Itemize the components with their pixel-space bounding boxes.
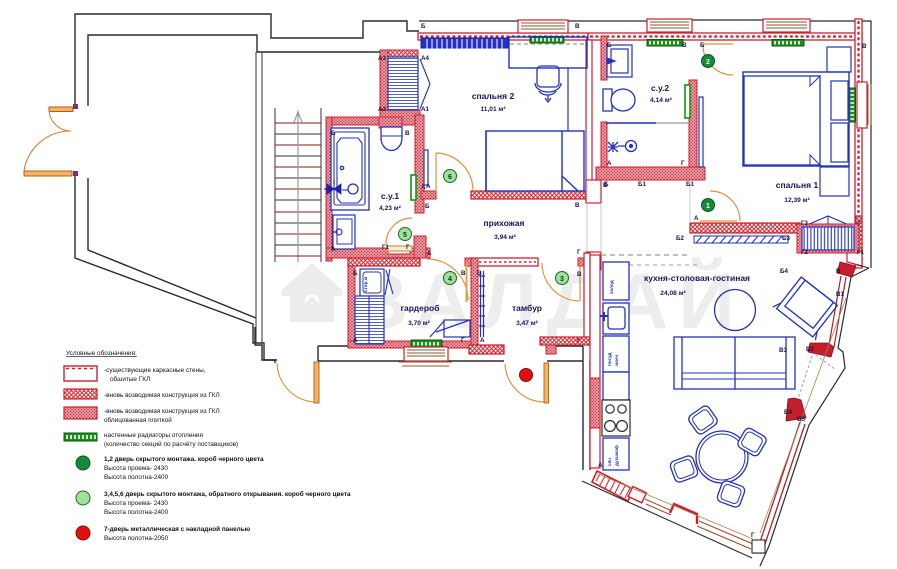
svg-text:Б: Б	[331, 130, 336, 137]
svg-text:4: 4	[448, 276, 452, 283]
svg-text:1: 1	[706, 203, 710, 210]
svg-text:Б2: Б2	[676, 235, 684, 242]
svg-text:В4: В4	[784, 409, 792, 416]
svg-text:В: В	[461, 270, 466, 277]
svg-text:В: В	[836, 268, 841, 275]
svg-text:Г: Г	[681, 160, 685, 167]
svg-text:гардероб: гардероб	[400, 303, 439, 313]
svg-text:кухня-столовая-гостиная: кухня-столовая-гостиная	[644, 273, 750, 283]
svg-text:Высота полотна-2400: Высота полотна-2400	[104, 474, 169, 481]
svg-text:В5: В5	[797, 416, 805, 423]
svg-text:А: А	[331, 246, 336, 253]
svg-text:Высота полотна-2400: Высота полотна-2400	[104, 509, 169, 516]
svg-text:В: В	[682, 42, 687, 49]
svg-text:24,08 м²: 24,08 м²	[660, 290, 686, 297]
svg-text:Б3: Б3	[782, 235, 790, 242]
svg-text:Г: Г	[858, 220, 862, 227]
svg-text:А: А	[480, 337, 485, 344]
svg-text:Высота полотна-2050: Высота полотна-2050	[104, 535, 169, 542]
svg-text:облицованная плиткой: облицованная плиткой	[104, 416, 172, 424]
svg-text:В1: В1	[836, 291, 844, 298]
svg-text:1,2 дверь скрытого монтажа. ко: 1,2 дверь скрытого монтажа. короб черног…	[104, 455, 264, 463]
svg-text:А: А	[427, 250, 432, 257]
svg-text:посуд: посуд	[607, 352, 612, 366]
svg-text:3,4,5,6 дверь скрытого монтажа: 3,4,5,6 дверь скрытого монтажа, обратног…	[104, 490, 351, 498]
svg-text:Высота проема- 2430: Высота проема- 2430	[104, 465, 168, 472]
svg-text:В: В	[862, 43, 867, 50]
svg-text:спальня 2: спальня 2	[472, 91, 515, 101]
svg-text:стир.м: стир.м	[363, 276, 368, 292]
svg-text:духшкаф: духшкаф	[613, 445, 619, 466]
svg-text:А: А	[598, 462, 603, 469]
svg-text:Г1: Г1	[382, 244, 390, 251]
svg-text:Г3: Г3	[801, 220, 809, 227]
svg-text:А: А	[353, 337, 358, 344]
svg-text:обшитые ГКЛ: обшитые ГКЛ	[110, 375, 150, 383]
svg-text:3,70 м²: 3,70 м²	[408, 320, 431, 327]
svg-text:Б: Б	[477, 270, 482, 277]
svg-text:Высота проема- 2430: Высота проема- 2430	[104, 500, 168, 507]
svg-text:Б: Б	[425, 203, 430, 210]
svg-text:-вновь возводимая конструкция: -вновь возводимая конструкция из ГКЛ	[104, 408, 220, 415]
svg-text:А: А	[607, 160, 612, 167]
svg-text:12,39 м²: 12,39 м²	[784, 197, 810, 204]
svg-text:-вновь возводимая конструкция: -вновь возводимая конструкция из ГКЛ	[104, 392, 220, 399]
svg-text:Б: Б	[607, 42, 612, 49]
svg-text:моеч: моеч	[614, 354, 619, 366]
svg-text:4,14 м²: 4,14 м²	[650, 97, 673, 104]
svg-text:Б: Б	[700, 42, 705, 49]
svg-text:с.у.1: с.у.1	[381, 191, 399, 201]
svg-text:А: А	[421, 184, 426, 191]
svg-text:(количество секций по расчёту: (количество секций по расчёту поставщико…	[104, 440, 238, 448]
svg-text:11,01 м²: 11,01 м²	[480, 106, 506, 113]
svg-text:Г1: Г1	[857, 249, 865, 256]
svg-text:Б: Б	[421, 23, 426, 30]
svg-text:Г: Г	[461, 337, 465, 344]
svg-text:тамбур: тамбур	[512, 303, 542, 313]
svg-text:Б: Б	[603, 182, 608, 189]
svg-text:Б1: Б1	[686, 181, 694, 188]
svg-text:В: В	[577, 271, 582, 278]
svg-text:В3: В3	[779, 347, 787, 354]
svg-text:6: 6	[448, 174, 452, 181]
svg-text:5: 5	[403, 232, 407, 239]
svg-text:Г2: Г2	[801, 249, 809, 256]
svg-text:Условные обозначения:: Условные обозначения:	[66, 349, 137, 357]
svg-text:В: В	[575, 202, 580, 209]
svg-text:А1: А1	[421, 106, 429, 113]
svg-text:3,94 м²: 3,94 м²	[494, 234, 517, 241]
svg-text:свч: свч	[607, 458, 612, 466]
svg-text:Г: Г	[577, 249, 581, 256]
svg-text:-существующие каркасные стены,: -существующие каркасные стены,	[104, 367, 206, 374]
svg-text:4,23 м²: 4,23 м²	[379, 205, 402, 212]
svg-text:настенные радиаторы отопления: настенные радиаторы отопления	[104, 432, 203, 439]
svg-text:В2: В2	[806, 346, 814, 353]
svg-text:Г: Г	[406, 244, 410, 251]
svg-text:Г: Г	[577, 338, 581, 345]
svg-text:7-дверь металлическая с наклад: 7-дверь металлическая с накладной панель…	[104, 525, 251, 533]
svg-text:В: В	[405, 130, 410, 137]
svg-text:Б4: Б4	[780, 268, 788, 275]
svg-text:с.у.2: с.у.2	[651, 83, 669, 93]
svg-text:Г: Г	[751, 532, 755, 539]
svg-text:А4: А4	[421, 55, 429, 62]
svg-text:2: 2	[706, 59, 710, 66]
svg-text:Б1: Б1	[638, 181, 646, 188]
svg-text:прихожая: прихожая	[484, 218, 525, 228]
svg-text:Б: Б	[353, 270, 358, 277]
svg-text:3,47 м²: 3,47 м²	[516, 320, 539, 327]
svg-text:В: В	[575, 23, 580, 30]
svg-text:А2: А2	[378, 106, 386, 113]
svg-text:А: А	[426, 183, 431, 190]
svg-text:А3: А3	[378, 55, 386, 62]
svg-text:ВАЛДАЙ: ВАЛДАЙ	[352, 257, 744, 345]
svg-text:спальня 1: спальня 1	[776, 180, 819, 190]
svg-text:3: 3	[560, 276, 564, 283]
svg-text:А: А	[694, 215, 699, 222]
svg-text:холод: холод	[609, 280, 614, 294]
